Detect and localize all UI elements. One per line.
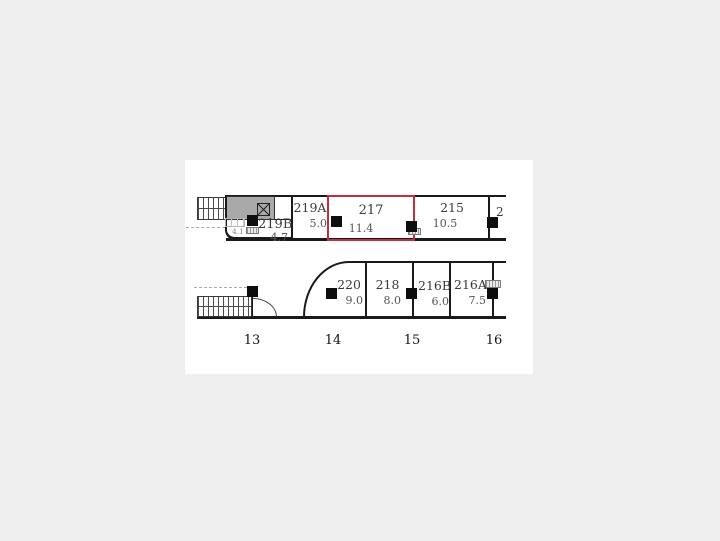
room-area: 10.5 [425,218,465,229]
dashed-centerline-lower [194,287,247,288]
room-219B-label: 219B 4.7 [258,218,288,243]
floor-plan-panel: 219A 5.0 217 11.4 215 10.5 2 219B 4.7 4.… [185,160,533,374]
door-swing-arc-icon [253,298,277,317]
room-area: 9.0 [335,295,363,306]
grid-column-label-15: 15 [400,333,424,348]
door-marker-216B-icon [406,288,417,299]
room-number: 219B [258,218,288,231]
stairs-upper-icon [197,197,226,220]
room-area: 5.0 [293,218,327,229]
door-marker-216A-icon [487,288,498,299]
room-number: 215 [425,202,479,215]
room-number: 218 [374,279,401,292]
room-220-label: 220 9.0 [335,279,363,306]
room-area: 6.0 [418,296,449,307]
room-215-label: 215 10.5 [425,202,479,229]
room-number: 220 [335,279,363,292]
door-hatch-216A-icon [485,280,501,288]
room-217-label: 217 11.4 [337,204,405,234]
room-number: 216B [418,280,449,293]
stairs-lower-icon [197,296,252,317]
room-number: 217 [337,204,405,217]
room-number: 219A [293,202,327,215]
room-216B-label: 216B 6.0 [418,280,449,307]
room-219A-label: 219A 5.0 [293,202,327,229]
small-room-area-label: 4.1 [232,227,244,236]
dashed-centerline-upper [186,227,225,228]
door-marker-stairs-icon [247,286,258,297]
room-218-label: 218 8.0 [374,279,401,306]
grid-column-label-13: 13 [240,333,264,348]
grid-column-label-16: 16 [482,333,506,348]
room-216A-label: 216A 7.5 [454,279,486,306]
room-area: 4.7 [258,232,288,243]
door-marker-215-icon [406,221,417,232]
floor-plan-page: 219A 5.0 217 11.4 215 10.5 2 219B 4.7 4.… [0,0,720,541]
room-area: 7.5 [454,295,486,306]
grid-column-label-14: 14 [321,333,345,348]
room-number: 216A [454,279,486,292]
room-area: 11.4 [337,223,385,234]
door-marker-219B-icon [247,215,258,226]
room-area: 8.0 [374,295,401,306]
small-fixture-icon [225,218,245,227]
room-partial-label: 2 [496,205,504,219]
